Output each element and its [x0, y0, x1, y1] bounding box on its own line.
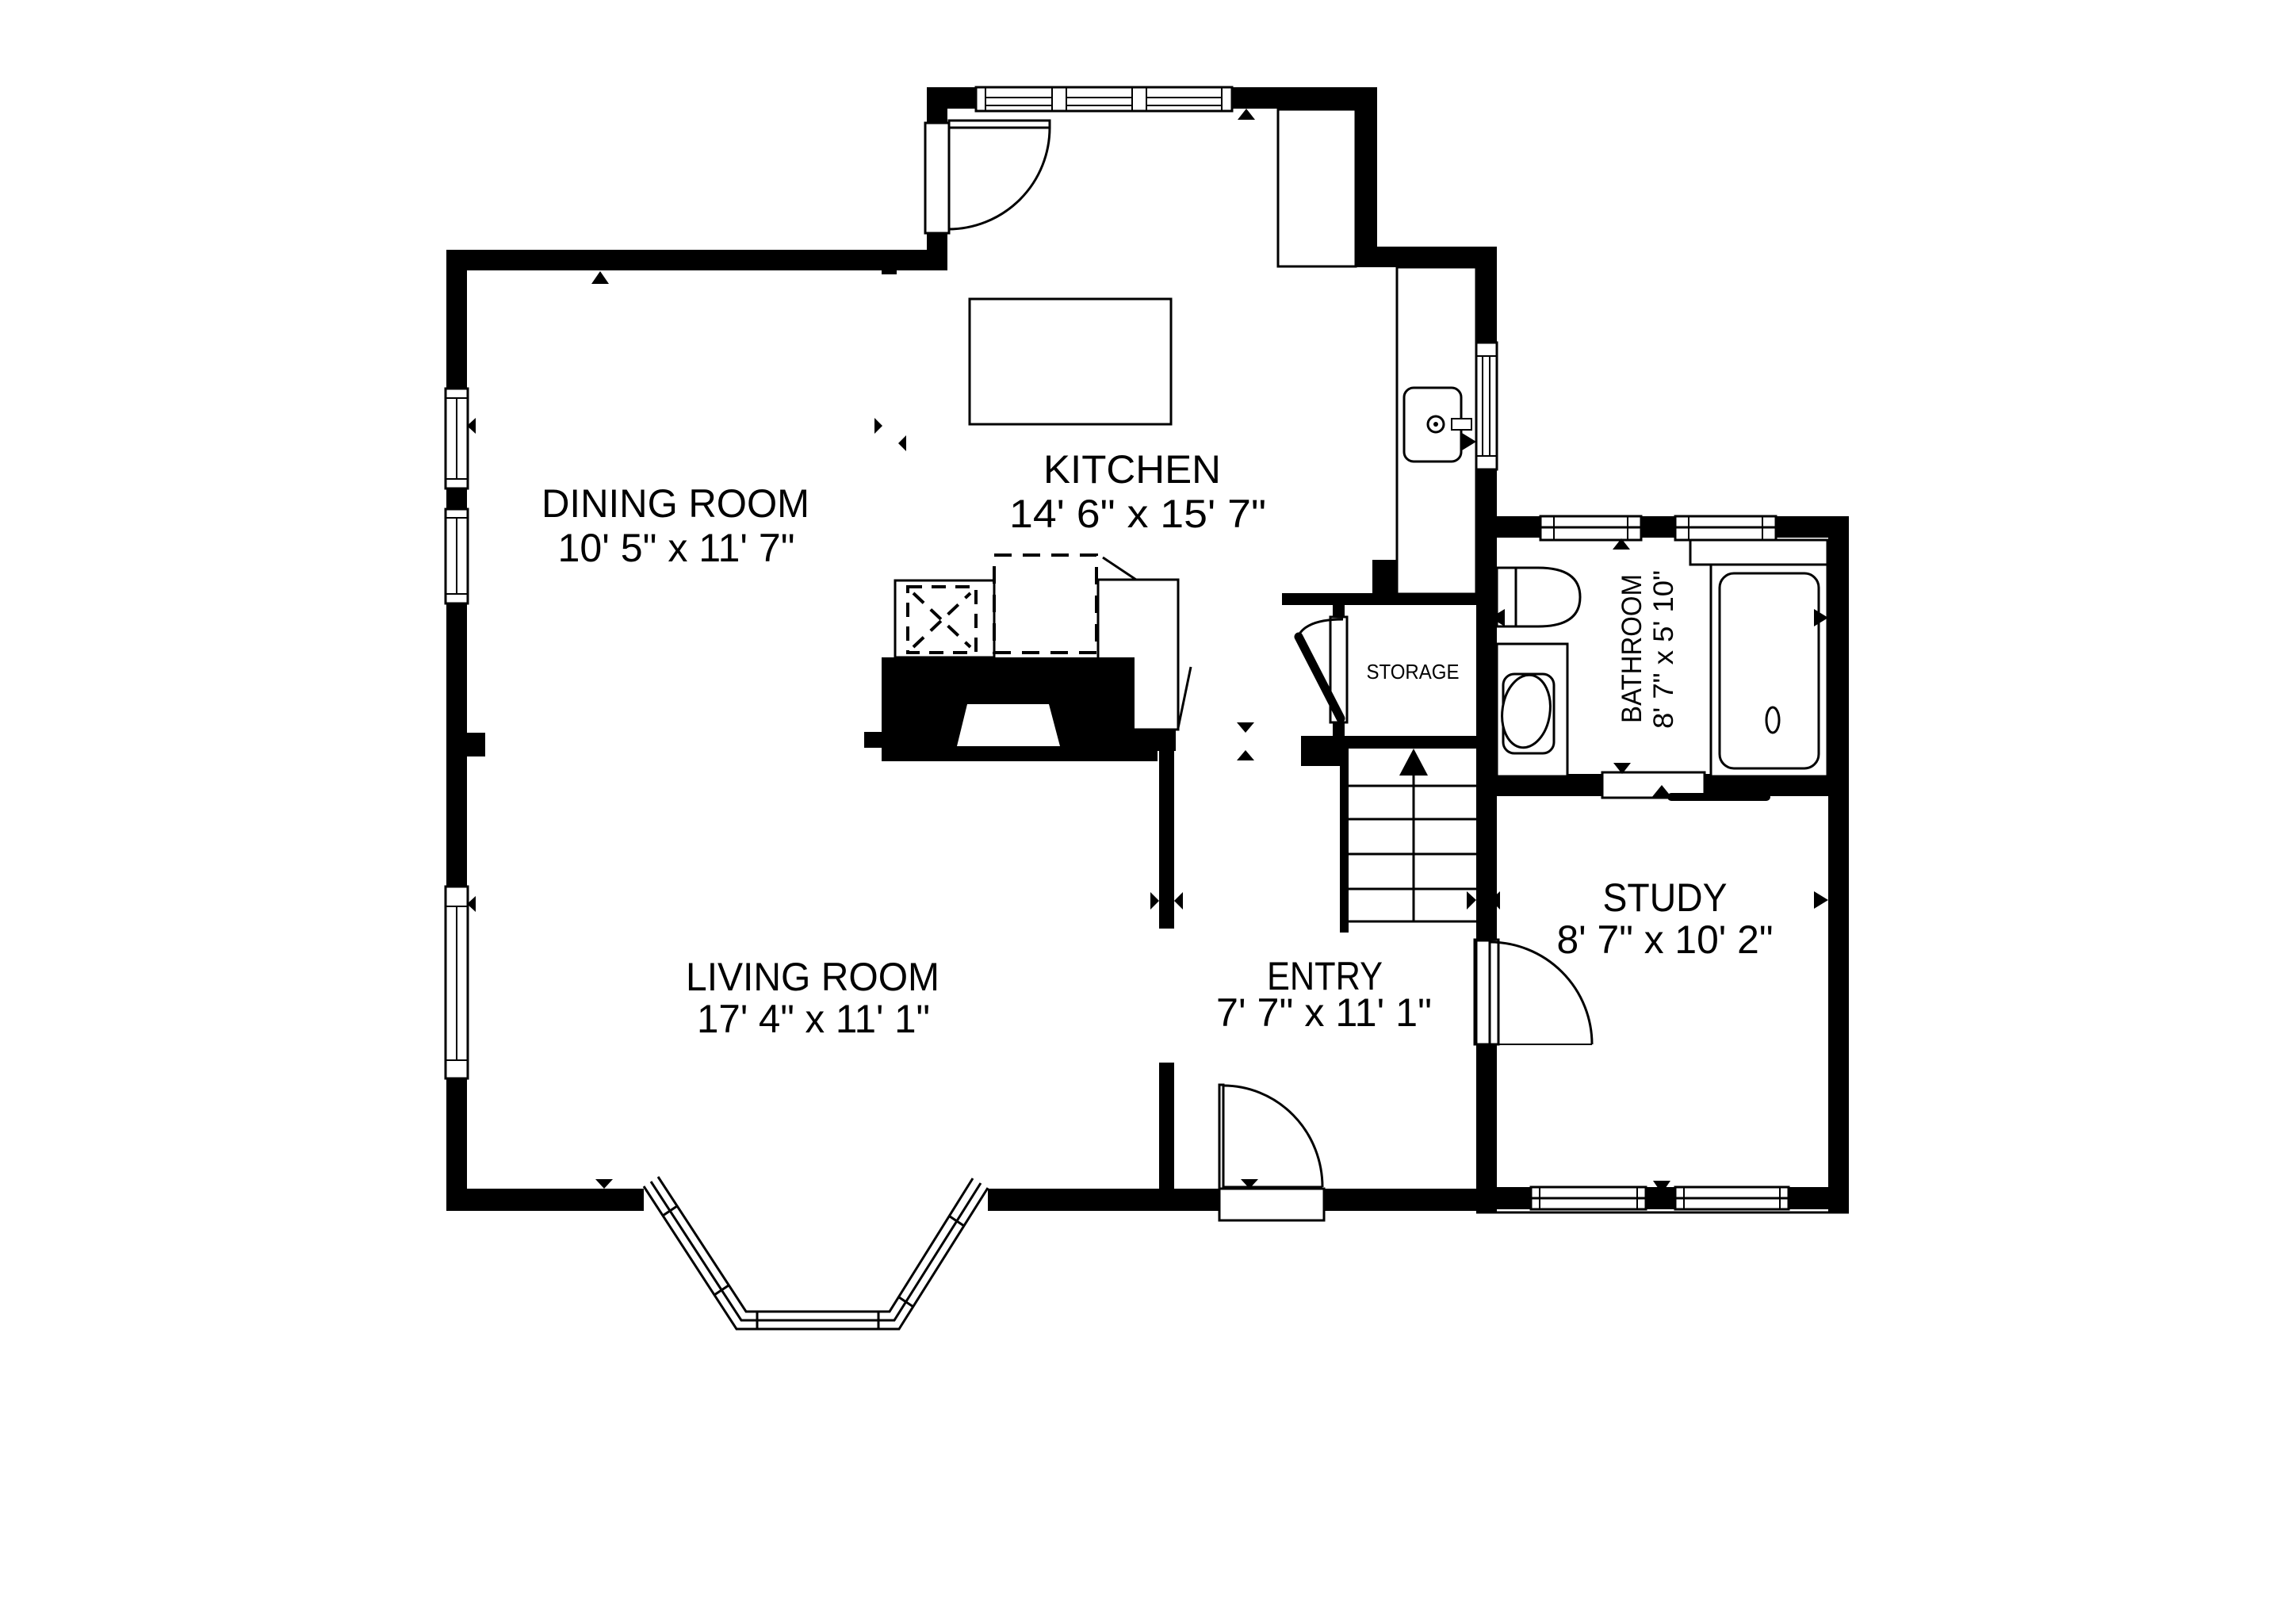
svg-text:STUDY: STUDY [1603, 875, 1728, 920]
svg-text:8' 7" x 10' 2": 8' 7" x 10' 2" [1557, 917, 1774, 962]
svg-text:7' 7" x 11' 1": 7' 7" x 11' 1" [1216, 990, 1432, 1035]
svg-text:8' 7" x 5' 10": 8' 7" x 5' 10" [1648, 570, 1679, 729]
svg-text:DINING ROOM: DINING ROOM [541, 481, 809, 526]
svg-text:14' 6" x 15' 7": 14' 6" x 15' 7" [1009, 492, 1266, 536]
svg-text:STORAGE: STORAGE [1367, 660, 1460, 684]
svg-text:BATHROOM: BATHROOM [1617, 574, 1647, 723]
svg-text:17' 4" x 11' 1": 17' 4" x 11' 1" [697, 997, 930, 1041]
svg-text:10' 5" x 11' 7": 10' 5" x 11' 7" [558, 526, 795, 570]
svg-text:KITCHEN: KITCHEN [1043, 447, 1221, 492]
svg-text:LIVING ROOM: LIVING ROOM [686, 955, 939, 999]
